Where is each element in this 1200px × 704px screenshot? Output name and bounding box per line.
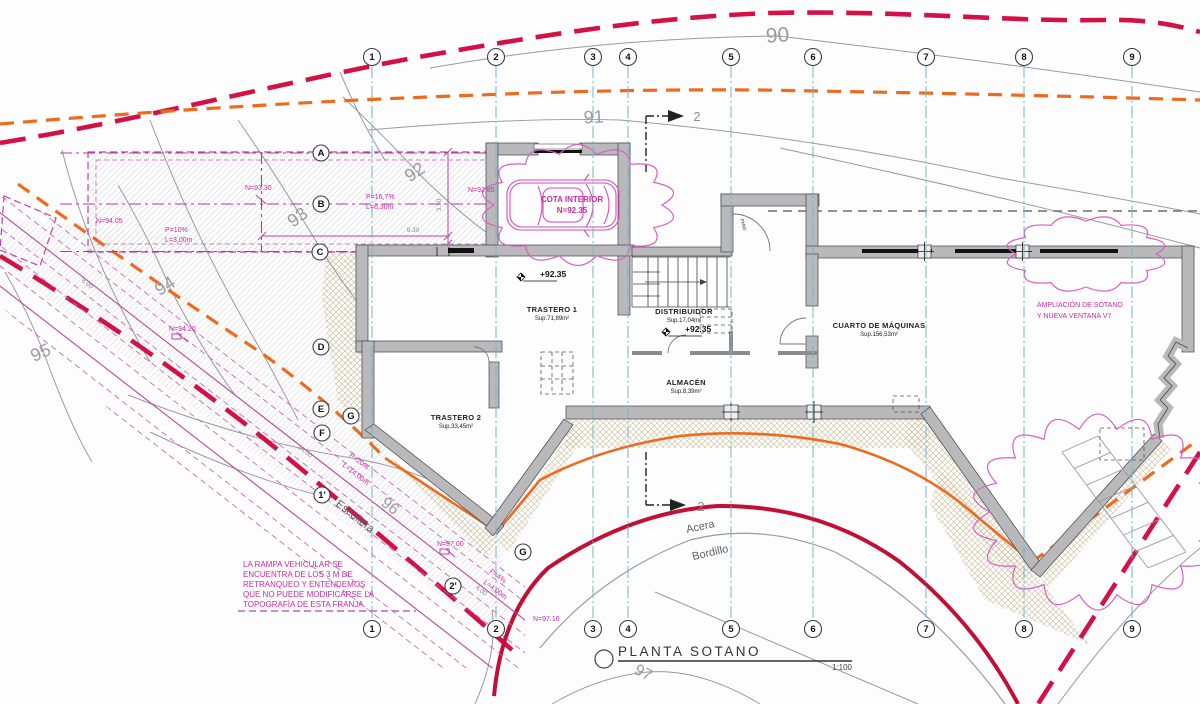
- label-mag-29: L=6,30m: [366, 204, 394, 211]
- label-sec-46: 2: [693, 109, 700, 124]
- stepped-retaining-wall: [1158, 342, 1188, 438]
- grid-bubble-label: 8: [1021, 52, 1026, 63]
- label-mag-26: L=3,00m: [165, 237, 193, 244]
- label-cota-20: COTA INTERIOR: [541, 195, 603, 204]
- label-mag-23: Y NUEVA VENTANA V7: [1037, 313, 1111, 320]
- plan-scale: 1:100: [832, 663, 853, 672]
- grid-bubble-label: 1: [369, 52, 375, 63]
- label-area-9: Sup.71,89m²: [535, 316, 569, 322]
- label-room-12: DISTRIBUIDOR: [655, 307, 713, 316]
- section-arrow: [668, 110, 684, 122]
- floor-plan-canvas: 112233445566778899ABCDEFGG1'2' 909192939…: [0, 0, 1200, 704]
- label-mag-34: N=97.00: [437, 541, 464, 548]
- note-line: QUE NO PUEDE MODIFICARSE LA: [243, 590, 375, 599]
- doors: [474, 214, 806, 362]
- grid-bubble-label: 7: [923, 52, 928, 63]
- grid-bubble-label: 1: [369, 624, 375, 635]
- grid-bubble-label: 9: [1129, 52, 1134, 63]
- label-room-10: TRASTERO 2: [431, 413, 482, 422]
- label-dim-39: 3.30: [436, 198, 443, 211]
- plan-title: PLANTA SOTANO: [618, 644, 761, 659]
- label-tiny-48: PM90: [740, 218, 748, 231]
- label-area-11: Sup.33,45m²: [439, 424, 473, 430]
- stairs: [632, 257, 730, 307]
- grid-bubble-label: 6: [810, 624, 815, 635]
- label-mag-25: P=10%: [165, 227, 188, 234]
- stair-step: [1074, 453, 1110, 469]
- label-street-44: Bordillo: [691, 543, 729, 563]
- label-mag-30: N=92.85: [468, 187, 495, 194]
- grid-bubble-label: 3: [590, 52, 595, 63]
- grid-bubble-label: 2: [493, 624, 498, 635]
- grid-bubble-label: 2: [493, 52, 498, 63]
- grid-bubble-label: F: [319, 428, 325, 439]
- grid-bubble-label: E: [318, 404, 324, 415]
- plan-drawing-svg: 112233445566778899ABCDEFGG1'2' 909192939…: [0, 0, 1200, 704]
- grid-bubble-label: 3: [590, 624, 595, 635]
- note-line: LA RAMPA VEHICULAR SE: [243, 560, 343, 569]
- label-mag-27: N=93.30: [245, 185, 272, 192]
- partitions: [632, 331, 818, 353]
- grid-bubble-label: G: [347, 411, 354, 422]
- ramp-note: LA RAMPA VEHICULAR SE ENCUENTRA DE LOS 3…: [243, 560, 375, 609]
- street-curb: [494, 506, 1018, 704]
- grid-bubble-label: 4: [625, 52, 631, 63]
- grid-bubble-label: D: [318, 342, 325, 353]
- label-area-17: Sup.156,53m²: [860, 332, 898, 338]
- grid-bubble-label: 4: [625, 624, 631, 635]
- garage-door: [534, 150, 582, 153]
- entry-door: [733, 214, 770, 251]
- label-level-18: +92.35: [540, 269, 567, 279]
- grid-bubble-label: 1': [318, 490, 326, 501]
- grid-bubble-label: 9: [1129, 624, 1134, 635]
- grid-bubble-label: G: [519, 547, 526, 558]
- grid-bubble-label: 5: [728, 624, 734, 635]
- note-line: ENCUENTRA DE LOS 3 M DE: [243, 570, 353, 579]
- label-contour-1: 91: [583, 106, 604, 127]
- label-cota-21: N=92.35: [557, 206, 588, 215]
- grid-bubble-label: 2': [449, 581, 457, 592]
- label-room-16: CUARTO DE MÁQUINAS: [833, 321, 926, 330]
- title-block: PLANTA SOTANO 1:100: [595, 644, 853, 672]
- wall-pilasters: [437, 242, 1032, 423]
- grid-bubble-label: A: [318, 148, 325, 159]
- grid-bubble-label: B: [318, 199, 325, 210]
- grid-bubble-label: 8: [1021, 624, 1026, 635]
- stair-step: [1062, 436, 1098, 452]
- label-contour-0: 90: [765, 23, 790, 48]
- stair-step: [1123, 519, 1160, 535]
- grid-bubble-label: C: [317, 247, 324, 258]
- note-line: RETRANQUEO Y ENTENDEMOS: [243, 580, 365, 589]
- label-mag-31: N=94.20: [169, 326, 196, 333]
- label-dim-40: 9.30: [407, 227, 420, 234]
- label-mag-24: N=94.05: [96, 218, 123, 225]
- title-bullet: [595, 650, 613, 668]
- label-mag-22: AMPLIACIÓN DE SÓTANO: [1037, 300, 1123, 309]
- label-mag-37: N=97.16: [533, 616, 560, 623]
- label-area-15: Sup.8,39m²: [670, 389, 701, 395]
- grid-bubble-label: 6: [810, 52, 815, 63]
- label-room-14: ALMACÉN: [666, 378, 706, 387]
- grid-bubble-label: 5: [728, 52, 734, 63]
- label-street-43: Acera: [685, 518, 716, 536]
- stair-step: [1136, 535, 1174, 551]
- label-contour-7: 97: [631, 661, 655, 684]
- label-contour-5: 95: [27, 339, 53, 365]
- note-line: TOPOGRAFÍA DE ESTA FRANJA.: [243, 600, 366, 609]
- label-level-19: +92.35: [685, 324, 712, 334]
- label-sec-47: 2: [697, 499, 704, 514]
- grid-bubble-label: 7: [923, 624, 928, 635]
- revision-clouds: [482, 145, 1200, 611]
- label-room-8: TRASTERO 1: [527, 305, 578, 314]
- label-mag-28: P=16,7%: [366, 194, 395, 201]
